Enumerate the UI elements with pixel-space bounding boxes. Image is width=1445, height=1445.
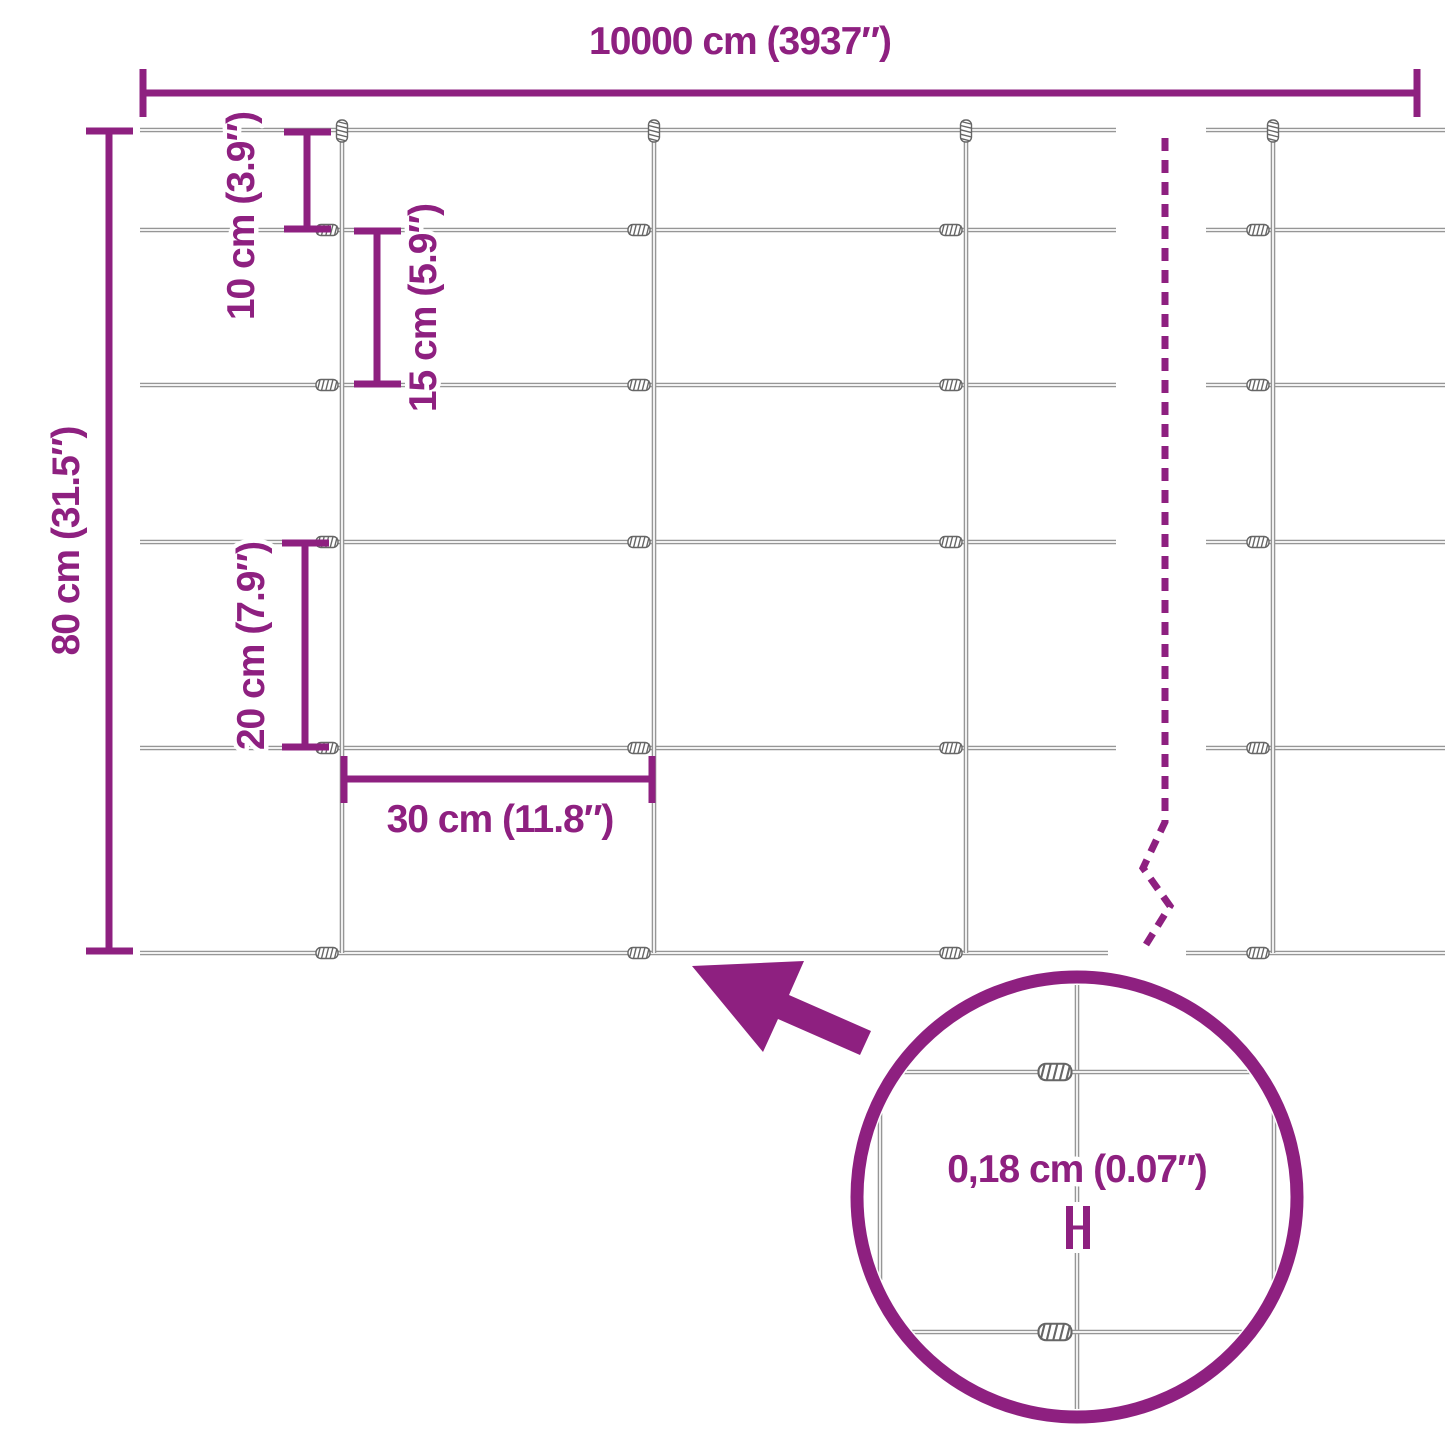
wire-twist-icon bbox=[940, 380, 962, 391]
row-spacing-10-label: 10 cm (3.9″) bbox=[220, 112, 263, 320]
row-spacing-15-label: 15 cm (5.9″) bbox=[402, 204, 445, 412]
total-width-dimension bbox=[143, 69, 1417, 117]
column-spacing-30-dimension bbox=[344, 756, 652, 803]
wire-twist-icon bbox=[316, 380, 338, 391]
wire-twist-icon bbox=[628, 537, 650, 548]
row-spacing-15-dimension bbox=[354, 231, 401, 384]
wire-detail-magnifier: 0,18 cm (0.07″) bbox=[857, 977, 1297, 1417]
wire-twist-icon bbox=[1247, 948, 1269, 959]
wire-twist-icon bbox=[337, 120, 348, 142]
wire-twist-icon bbox=[628, 380, 650, 391]
wire-thickness-label: 0,18 cm (0.07″) bbox=[947, 1148, 1207, 1191]
zoom-arrow-icon bbox=[692, 961, 871, 1055]
wire-twist-icon bbox=[940, 537, 962, 548]
row-spacing-20-dimension bbox=[282, 543, 329, 747]
wire-twist-icon bbox=[628, 743, 650, 754]
wire-thickness-symbol bbox=[1063, 1202, 1091, 1253]
row-spacing-10-dimension bbox=[284, 132, 331, 229]
wire-twist-icon bbox=[1247, 225, 1269, 236]
wire-twist-icon bbox=[1247, 743, 1269, 754]
wire-twist-icon bbox=[1247, 380, 1269, 391]
wire-twist-icon bbox=[940, 948, 962, 959]
wire-twist-icon bbox=[316, 948, 338, 959]
fence-dimension-diagram: 10000 cm (3937″) 80 cm (31.5″) 10 cm (3.… bbox=[0, 0, 1445, 1445]
wire-twist-icon bbox=[628, 225, 650, 236]
column-spacing-30-label: 30 cm (11.8″) bbox=[387, 798, 614, 841]
diagram-svg: 10000 cm (3937″) 80 cm (31.5″) 10 cm (3.… bbox=[0, 0, 1445, 1445]
wire-twist-icon bbox=[1268, 120, 1279, 142]
wire-twist-icon bbox=[940, 225, 962, 236]
length-break-line bbox=[1142, 138, 1170, 951]
wire-twist-icon bbox=[940, 743, 962, 754]
total-height-dimension bbox=[86, 131, 133, 951]
total-width-label: 10000 cm (3937″) bbox=[589, 20, 891, 63]
wire-twist-icon bbox=[961, 120, 972, 142]
total-height-label: 80 cm (31.5″) bbox=[45, 427, 88, 656]
wire-twist-icon bbox=[1247, 537, 1269, 548]
wire-twist-icon bbox=[1039, 1064, 1072, 1081]
row-spacing-20-label: 20 cm (7.9″) bbox=[230, 542, 273, 750]
wire-twist-icon bbox=[649, 120, 660, 142]
wire-twist-icon bbox=[1039, 1324, 1072, 1341]
wire-twist-icon bbox=[628, 948, 650, 959]
